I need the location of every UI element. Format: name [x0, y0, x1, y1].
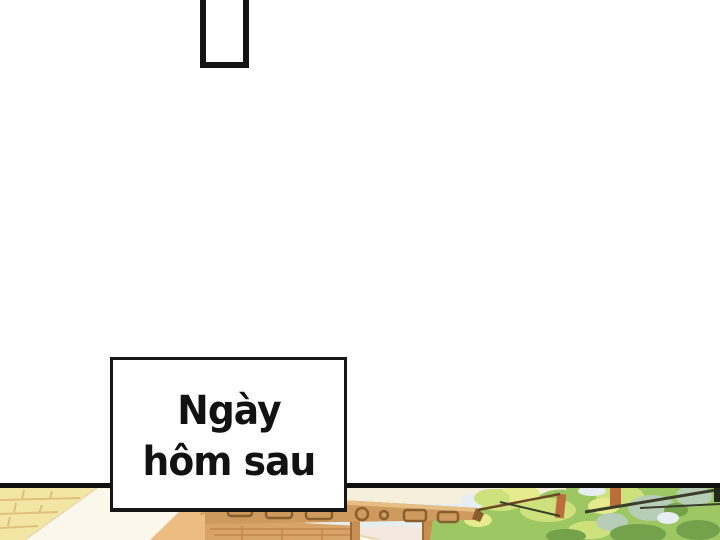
right-edge-shadow: [714, 488, 720, 502]
comic-page: Ngày hôm sau: [0, 0, 720, 540]
speech-bubble-partial: [200, 0, 249, 68]
caption-line-1: Ngày: [177, 386, 280, 437]
caption-box: Ngày hôm sau: [110, 357, 347, 512]
caption-line-2: hôm sau: [142, 437, 315, 488]
bottom-scene-illustration: [0, 488, 720, 540]
